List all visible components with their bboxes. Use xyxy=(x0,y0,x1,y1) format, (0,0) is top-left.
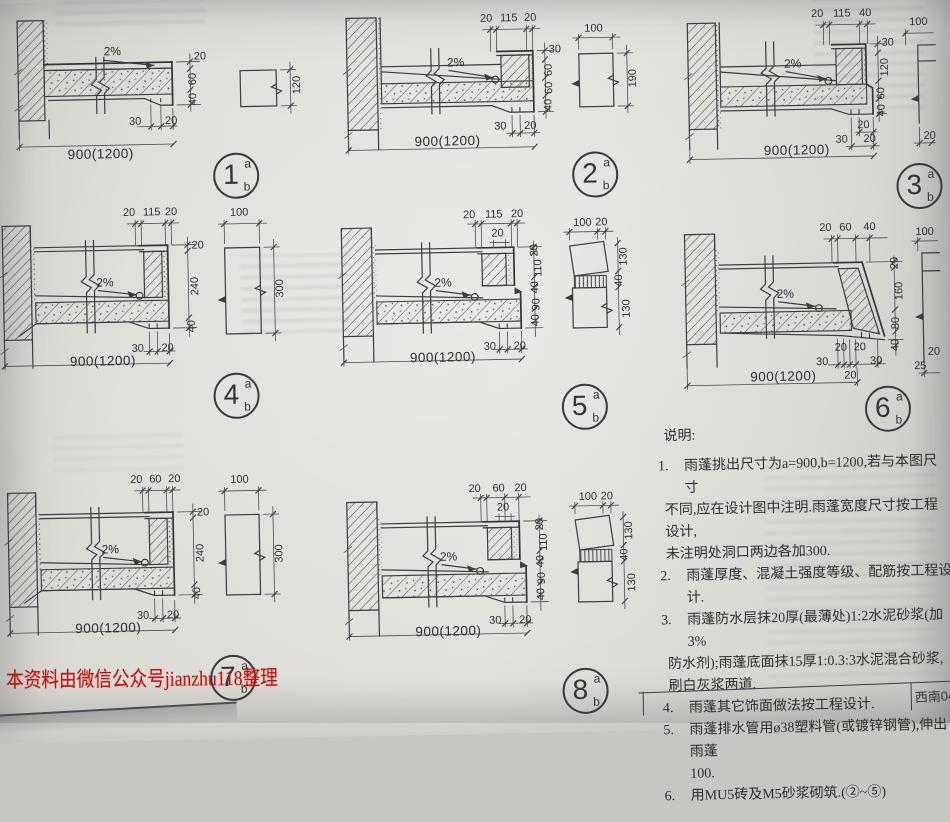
dim-label: 110 xyxy=(539,533,550,551)
dim-label: 100 xyxy=(573,218,592,229)
dim-label: 100 xyxy=(230,208,249,219)
dim-label: 40 xyxy=(192,587,203,599)
dim-label: 100 xyxy=(584,23,603,34)
dim-label: 20 xyxy=(165,207,177,218)
detail-number: 5 xyxy=(572,388,588,425)
dim-label: 20 xyxy=(130,475,142,486)
dim-label: 20 xyxy=(497,502,509,513)
dim-label: 80 xyxy=(891,317,902,329)
span-dim-label: 900(1200) xyxy=(70,354,136,369)
dim-label: 110 xyxy=(533,259,544,277)
dim-label: 60 xyxy=(544,64,555,76)
dim-label: 20 xyxy=(463,210,475,221)
dim-label: 20 xyxy=(191,240,203,251)
dim-label: 20 xyxy=(854,342,866,353)
dim-label: 60 xyxy=(188,73,199,85)
slope-label: 2% xyxy=(434,276,452,288)
dim-label: 20 xyxy=(511,209,523,220)
slope-label: 2% xyxy=(102,543,120,555)
note-number: 6. xyxy=(665,786,691,809)
dim-label: 20 xyxy=(529,244,540,256)
dim-label: 20 xyxy=(857,120,869,131)
dim-label: 40 xyxy=(535,555,546,567)
dim-label: 120 xyxy=(292,76,303,95)
note-item: 6. 用MU5砖及M5砂浆砌筑.(②~⑤) xyxy=(665,780,950,808)
watermark-text: 本资料由微信公众号jianzhu118整理 xyxy=(6,662,278,694)
detail-1: 2% 20 60 40 30 20 900(1200) 120 1 a b xyxy=(3,9,317,211)
dim-label: 20 xyxy=(123,208,135,219)
dim-label: 240 xyxy=(195,544,206,563)
dim-label: 40 xyxy=(536,588,547,600)
dim-label: 30 xyxy=(129,117,141,128)
detail-suffix-b: b xyxy=(603,178,610,192)
detail-number: 8 xyxy=(572,672,588,709)
scanned-drawing-page: { "page": { "watermark": "本资料由微信公众号jianz… xyxy=(0,0,950,723)
dim-label: 130 xyxy=(627,573,638,592)
dim-label: 90 xyxy=(537,572,548,584)
detail-suffix-a: a xyxy=(244,156,251,170)
dim-label: 20 xyxy=(923,131,935,142)
dim-label: 20 xyxy=(844,370,856,381)
slope-label: 2% xyxy=(447,56,465,68)
slope-label: 2% xyxy=(777,288,795,300)
dim-label: 30 xyxy=(870,356,882,367)
dim-label: 300 xyxy=(274,544,285,563)
dim-label: 20 xyxy=(595,217,607,228)
span-dim-label: 900(1200) xyxy=(410,350,476,365)
detail-suffix-b: b xyxy=(593,695,600,709)
dim-label: 90 xyxy=(531,298,542,310)
bleedthrough-artifact xyxy=(240,252,352,334)
dim-label: 40 xyxy=(619,548,630,560)
dim-label: 115 xyxy=(485,209,503,220)
dim-label: 30 xyxy=(816,357,828,368)
dim-label: 30 xyxy=(489,616,501,627)
dim-label: 100 xyxy=(915,227,934,238)
dim-label: 40 xyxy=(531,314,542,326)
bleedthrough-artifact xyxy=(55,0,205,26)
dim-label: 40 xyxy=(530,281,541,293)
detail-5: 2% 20 115 20 20 20 110 40 90 40 30 20 90… xyxy=(329,208,669,450)
note-line: 用MU5砖及M5砂浆砌筑.(②~⑤) xyxy=(691,782,887,808)
note-line: 雨蓬排水管用ø38塑料管(或镀锌钢管),伸出雨蓬 xyxy=(689,714,950,763)
detail-5-drawing xyxy=(329,208,669,450)
dim-label: 20 xyxy=(514,341,526,352)
dim-label: 20 xyxy=(819,223,831,234)
dim-label: 100 xyxy=(579,492,598,503)
note-number: 2. xyxy=(660,566,687,611)
dim-label: 20 xyxy=(890,257,901,269)
dim-label: 20 xyxy=(524,13,536,24)
slope-label: 2% xyxy=(96,276,114,288)
detail-number: 1 xyxy=(223,157,239,194)
dim-label: 190 xyxy=(628,69,639,88)
dim-label: 40 xyxy=(543,99,554,111)
detail-number: 2 xyxy=(582,156,598,193)
dim-label: 20 xyxy=(194,51,206,62)
dim-label: 20 xyxy=(491,228,503,239)
dim-label: 20 xyxy=(835,343,847,354)
dim-label: 40 xyxy=(863,222,875,233)
dim-label: 30 xyxy=(494,121,506,132)
slope-label: 2% xyxy=(784,57,802,69)
atlas-code: 西南04J5 xyxy=(914,684,950,706)
dim-label: 30 xyxy=(835,134,847,145)
detail-suffix-a: a xyxy=(603,155,610,169)
detail-number: 3 xyxy=(906,167,922,204)
dim-label: 30 xyxy=(549,44,561,55)
dim-label: 60 xyxy=(839,222,851,233)
dim-label: 25 xyxy=(914,361,926,372)
dim-label: 30 xyxy=(484,342,496,353)
slope-label: 2% xyxy=(440,550,458,562)
dim-label: 20 xyxy=(167,610,179,621)
detail-suffix-b: b xyxy=(244,179,251,193)
dim-label: 160 xyxy=(894,282,905,301)
dim-label: 60 xyxy=(492,483,504,494)
detail-6: 2% 20 60 40 20 160 80 40 20 20 30 30 20 … xyxy=(669,215,944,448)
dim-label: 60 xyxy=(149,474,161,485)
dim-label: 20 xyxy=(162,343,174,354)
detail-8: 2% 20 60 20 20 20 110 40 90 40 30 20 900… xyxy=(334,470,669,720)
detail-suffix-b: b xyxy=(592,411,599,425)
span-dim-label: 900(1200) xyxy=(415,624,481,639)
detail-suffix-a: a xyxy=(594,672,601,686)
dim-label: 130 xyxy=(621,299,632,318)
bleedthrough-artifact xyxy=(813,0,925,111)
dim-label: 20 xyxy=(468,484,480,495)
paper-sheet: 2% 20 60 40 30 20 900(1200) 120 1 a b xyxy=(0,0,950,744)
dim-label: 20 xyxy=(863,134,875,145)
dim-label: 130 xyxy=(618,247,629,266)
span-dim-label: 900(1200) xyxy=(68,147,134,162)
dim-label: 20 xyxy=(519,615,531,626)
dim-label: 40 xyxy=(188,93,199,105)
dim-label: 40 xyxy=(890,339,901,351)
dim-label: 240 xyxy=(190,277,201,296)
bleedthrough-artifact xyxy=(53,430,184,473)
bleedthrough-artifact xyxy=(764,455,938,678)
dim-label: 60 xyxy=(544,82,555,94)
dim-label: 20 xyxy=(524,121,536,132)
detail-suffix-a: a xyxy=(593,388,600,402)
detail-suffix-b: b xyxy=(927,190,934,204)
slope-label: 2% xyxy=(104,45,122,57)
detail-number: 4 xyxy=(223,377,239,414)
span-dim-label: 900(1200) xyxy=(750,369,816,384)
dim-label: 20 xyxy=(197,507,209,518)
dim-label: 20 xyxy=(514,483,526,494)
dim-label: 40 xyxy=(614,274,625,286)
dim-label: 100 xyxy=(230,475,249,486)
note-number: 5. xyxy=(663,720,690,787)
dim-label: 115 xyxy=(143,207,161,218)
dim-label: 20 xyxy=(601,491,613,502)
dim-label: 20 xyxy=(480,14,492,25)
note-number: 4. xyxy=(663,698,689,721)
detail-1-drawing xyxy=(3,9,317,211)
dim-label: 20 xyxy=(928,347,940,358)
dim-label: 20 xyxy=(168,474,180,485)
dim-label: 20 xyxy=(535,518,546,530)
span-dim-label: 900(1200) xyxy=(764,143,830,158)
dim-label: 20 xyxy=(165,116,177,127)
dim-label: 115 xyxy=(500,13,518,24)
span-dim-label: 900(1200) xyxy=(75,621,141,636)
detail-suffix-a: a xyxy=(245,376,252,390)
notes-title: 说明: xyxy=(663,420,949,448)
detail-suffix-a: a xyxy=(896,389,903,403)
detail-2: 2% 20 115 20 30 60 60 40 30 20 900(1200)… xyxy=(330,4,664,211)
dim-label: 40 xyxy=(187,320,198,332)
note-item: 5. 雨蓬排水管用ø38塑料管(或镀锌钢管),伸出雨蓬 100. xyxy=(663,714,950,786)
detail-suffix-a: a xyxy=(927,167,934,181)
span-dim-label: 900(1200) xyxy=(414,134,480,149)
dim-label: 130 xyxy=(624,521,635,540)
detail-suffix-b: b xyxy=(244,400,251,414)
